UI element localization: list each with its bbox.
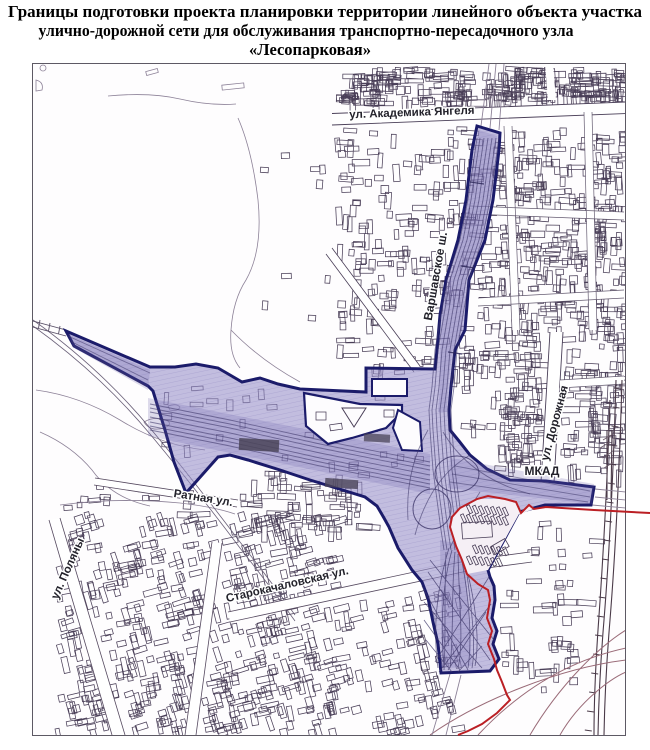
svg-text:«Лесопарковая»: «Лесопарковая» xyxy=(249,40,371,59)
svg-text:МКАД: МКАД xyxy=(525,464,560,478)
svg-text:улично-дорожной сети для обслу: улично-дорожной сети для обслуживания тр… xyxy=(39,21,574,40)
svg-text:Границы подготовки проекта пла: Границы подготовки проекта планировки те… xyxy=(8,2,642,21)
